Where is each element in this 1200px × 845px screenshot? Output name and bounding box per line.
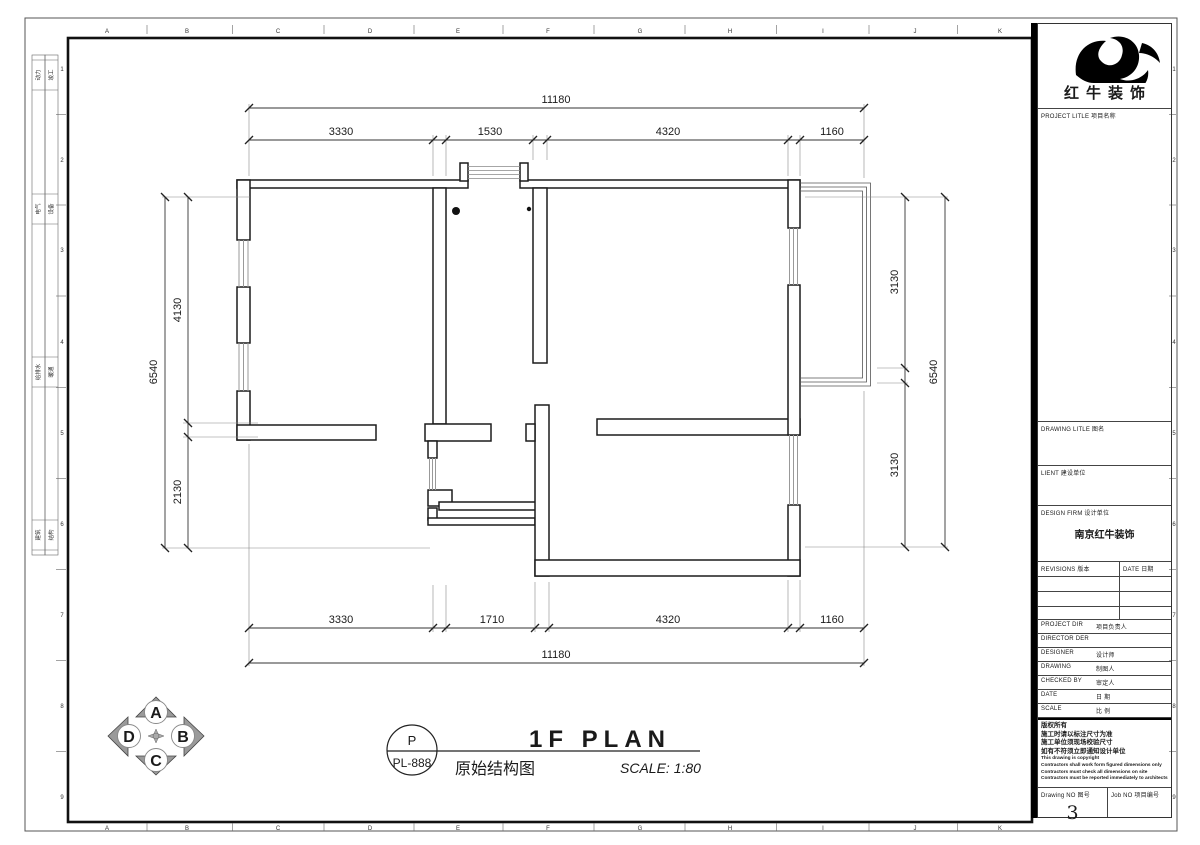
ruler-number-left: 8 [60,704,64,710]
discipline-stamp-strip [32,55,58,555]
drawing-no-value: 3 [1041,802,1104,824]
row-designer: DESIGNER 设计师 [1038,647,1171,661]
client-label: LIENT 建设单位 [1041,471,1086,477]
row-checked-by: CHECKED BY 审定人 [1038,675,1171,689]
ruler-letter-bottom: K [998,826,1002,832]
ruler-letter-top: K [998,29,1002,35]
stamp-label: 竣工 [47,69,55,81]
ruler-number-right: 1 [1172,67,1176,73]
dim-left-total: 6540 [148,360,160,384]
ruler-letter-top: A [105,29,109,35]
dim-bottom-seg: 1710 [480,614,504,626]
ruler-letter-top: J [914,29,917,35]
ruler-letter-top: B [185,29,189,35]
ruler-letter-top: F [546,29,550,35]
ruler-number-right: 6 [1172,522,1176,528]
floor-plan-walls [237,163,800,576]
dim-top-total: 11180 [542,94,571,106]
job-no-cell: Job NO 项目编号 [1108,788,1171,817]
ruler-letter-bottom: A [105,826,109,832]
design-firm-label: DESIGN FIRM 设计单位 [1041,511,1109,517]
design-firm-cell: DESIGN FIRM 设计单位 南京红牛装饰 [1038,505,1171,561]
ruler-number-left: 7 [60,613,64,619]
client-cell: LIENT 建设单位 [1038,465,1171,505]
job-no-label: Job NO 项目编号 [1111,793,1159,799]
stamp-label: 给排水 [34,363,42,380]
ruler-letter-bottom: B [185,826,189,832]
ruler-number-right: 7 [1172,613,1176,619]
row-director: DIRECTOR DER [1038,633,1171,647]
compass-center-ornament [148,729,164,743]
compass-letter-e: B [177,729,189,746]
ruler-letter-top: C [276,29,281,35]
dim-top-seg: 3330 [329,126,353,138]
dim-bottom-seg: 1160 [820,614,844,626]
project-title-label: PROJECT LITLE 项目名称 [1041,114,1116,120]
sheet-code: PL-888 [393,756,432,770]
brand-logo [1038,27,1171,83]
ruler-letter-bottom: G [638,826,643,832]
ruler-letter-top: D [368,29,373,35]
ruler-number-right: 2 [1172,158,1176,164]
plan-title: 1F PLAN [529,726,671,753]
ruler-number-left: 9 [60,795,64,801]
ruler-letter-bottom: C [276,826,281,832]
drawing-sheet: 动力 竣工 电气 设备 给排水 暖通 建筑 结构 [0,0,1200,845]
ruler-letter-bottom: D [368,826,373,832]
ruler-number-left: 6 [60,522,64,528]
ruler-letter-top: I [822,29,824,35]
stamp-label: 建筑 [34,529,42,541]
dim-right-seg: 3130 [889,453,901,477]
door-pivot-dots [452,207,531,215]
ruler-letter-top: G [638,29,643,35]
entry-door-icon [468,167,520,179]
sheet-code-discipline: P [408,733,417,748]
ruler-letter-bottom: E [456,826,460,832]
numbers-row: Drawing NO 图号 3 Job NO 项目编号 [1038,787,1171,817]
ruler-number-left: 2 [60,158,64,164]
compass: A B C D [108,697,204,775]
revisions-table: REVISIONS 版本 DATE 日期 [1038,561,1171,619]
row-drawing: DRAWING 制图人 [1038,661,1171,675]
ruler-letter-bottom: F [546,826,550,832]
ruler-number-left: 3 [60,248,64,254]
project-title-cell: PROJECT LITLE 项目名称 [1038,108,1171,421]
revisions-date-label: DATE 日期 [1123,567,1154,573]
ruler-number-right: 9 [1172,795,1176,801]
ruler-number-right: 5 [1172,431,1176,437]
dim-top-seg: 4320 [656,126,680,138]
dim-right-seg: 3130 [889,270,901,294]
ruler-number-right: 4 [1172,340,1176,346]
stamp-label: 动力 [34,69,42,80]
brand-name: 红牛装饰 [1038,82,1171,103]
dim-top-seg: 1530 [478,126,502,138]
ruler-letter-top: H [728,29,732,35]
ruler-letter-bottom: H [728,826,732,832]
dim-right-total: 6540 [928,360,940,384]
stamp-label: 结构 [47,529,55,541]
compass-letter-n: A [150,705,162,722]
drawing-no-cell: Drawing NO 图号 3 [1038,788,1108,817]
ruler-number-left: 5 [60,431,64,437]
balcony-railing [800,183,871,386]
stamp-label: 电气 [34,203,42,215]
copyright-cell: 版权所有 施工时请以标注尺寸为准 施工单位须现场校验尺寸 如有不符须立即通知设计… [1038,720,1171,787]
drawing-title-bar: P PL-888 1F PLAN 原始结构图 SCALE: 1:80 [387,725,701,778]
drawing-title-label: DRAWING LITLE 图名 [1041,427,1104,433]
dim-bottom-seg: 3330 [329,614,353,626]
row-date: DATE 日 期 [1038,689,1171,703]
ruler-number-right: 3 [1172,248,1176,254]
row-scale: SCALE 比 例 [1038,703,1171,717]
ruler-number-right: 8 [1172,704,1176,710]
dim-left-seg: 4130 [172,298,184,322]
compass-letter-s: C [150,753,162,770]
ruler-number-left: 4 [60,340,64,346]
window-icon [239,228,798,505]
dim-top-seg: 1160 [820,126,844,138]
ruler-number-left: 1 [60,67,64,73]
compass-letter-w: D [123,729,135,746]
ruler-letter-bottom: J [914,826,917,832]
dim-left-seg: 2130 [172,480,184,504]
revisions-label: REVISIONS 版本 [1041,564,1090,573]
title-block: 红牛装饰 PROJECT LITLE 项目名称 DRAWING LITLE 图名… [1037,23,1172,818]
drawing-no-label: Drawing NO 图号 [1041,793,1090,799]
row-project-dir: PROJECT DIR 项目负责人 [1038,619,1171,633]
dim-bottom-seg: 4320 [656,614,680,626]
stamp-label: 设备 [47,203,55,215]
plan-canvas: 动力 竣工 电气 设备 给排水 暖通 建筑 结构 [0,0,1200,845]
ruler-letter-top: E [456,29,460,35]
plan-subtitle: 原始结构图 [455,760,535,778]
drawing-title-cell: DRAWING LITLE 图名 [1038,421,1171,465]
stamp-label: 暖通 [47,366,55,378]
design-firm-value: 南京红牛装饰 [1041,526,1168,541]
discipline-stamp-labels: 动力 竣工 电气 设备 给排水 暖通 建筑 结构 [34,69,55,541]
plan-scale: SCALE: 1:80 [620,760,701,776]
dim-bottom-total: 11180 [542,649,571,661]
